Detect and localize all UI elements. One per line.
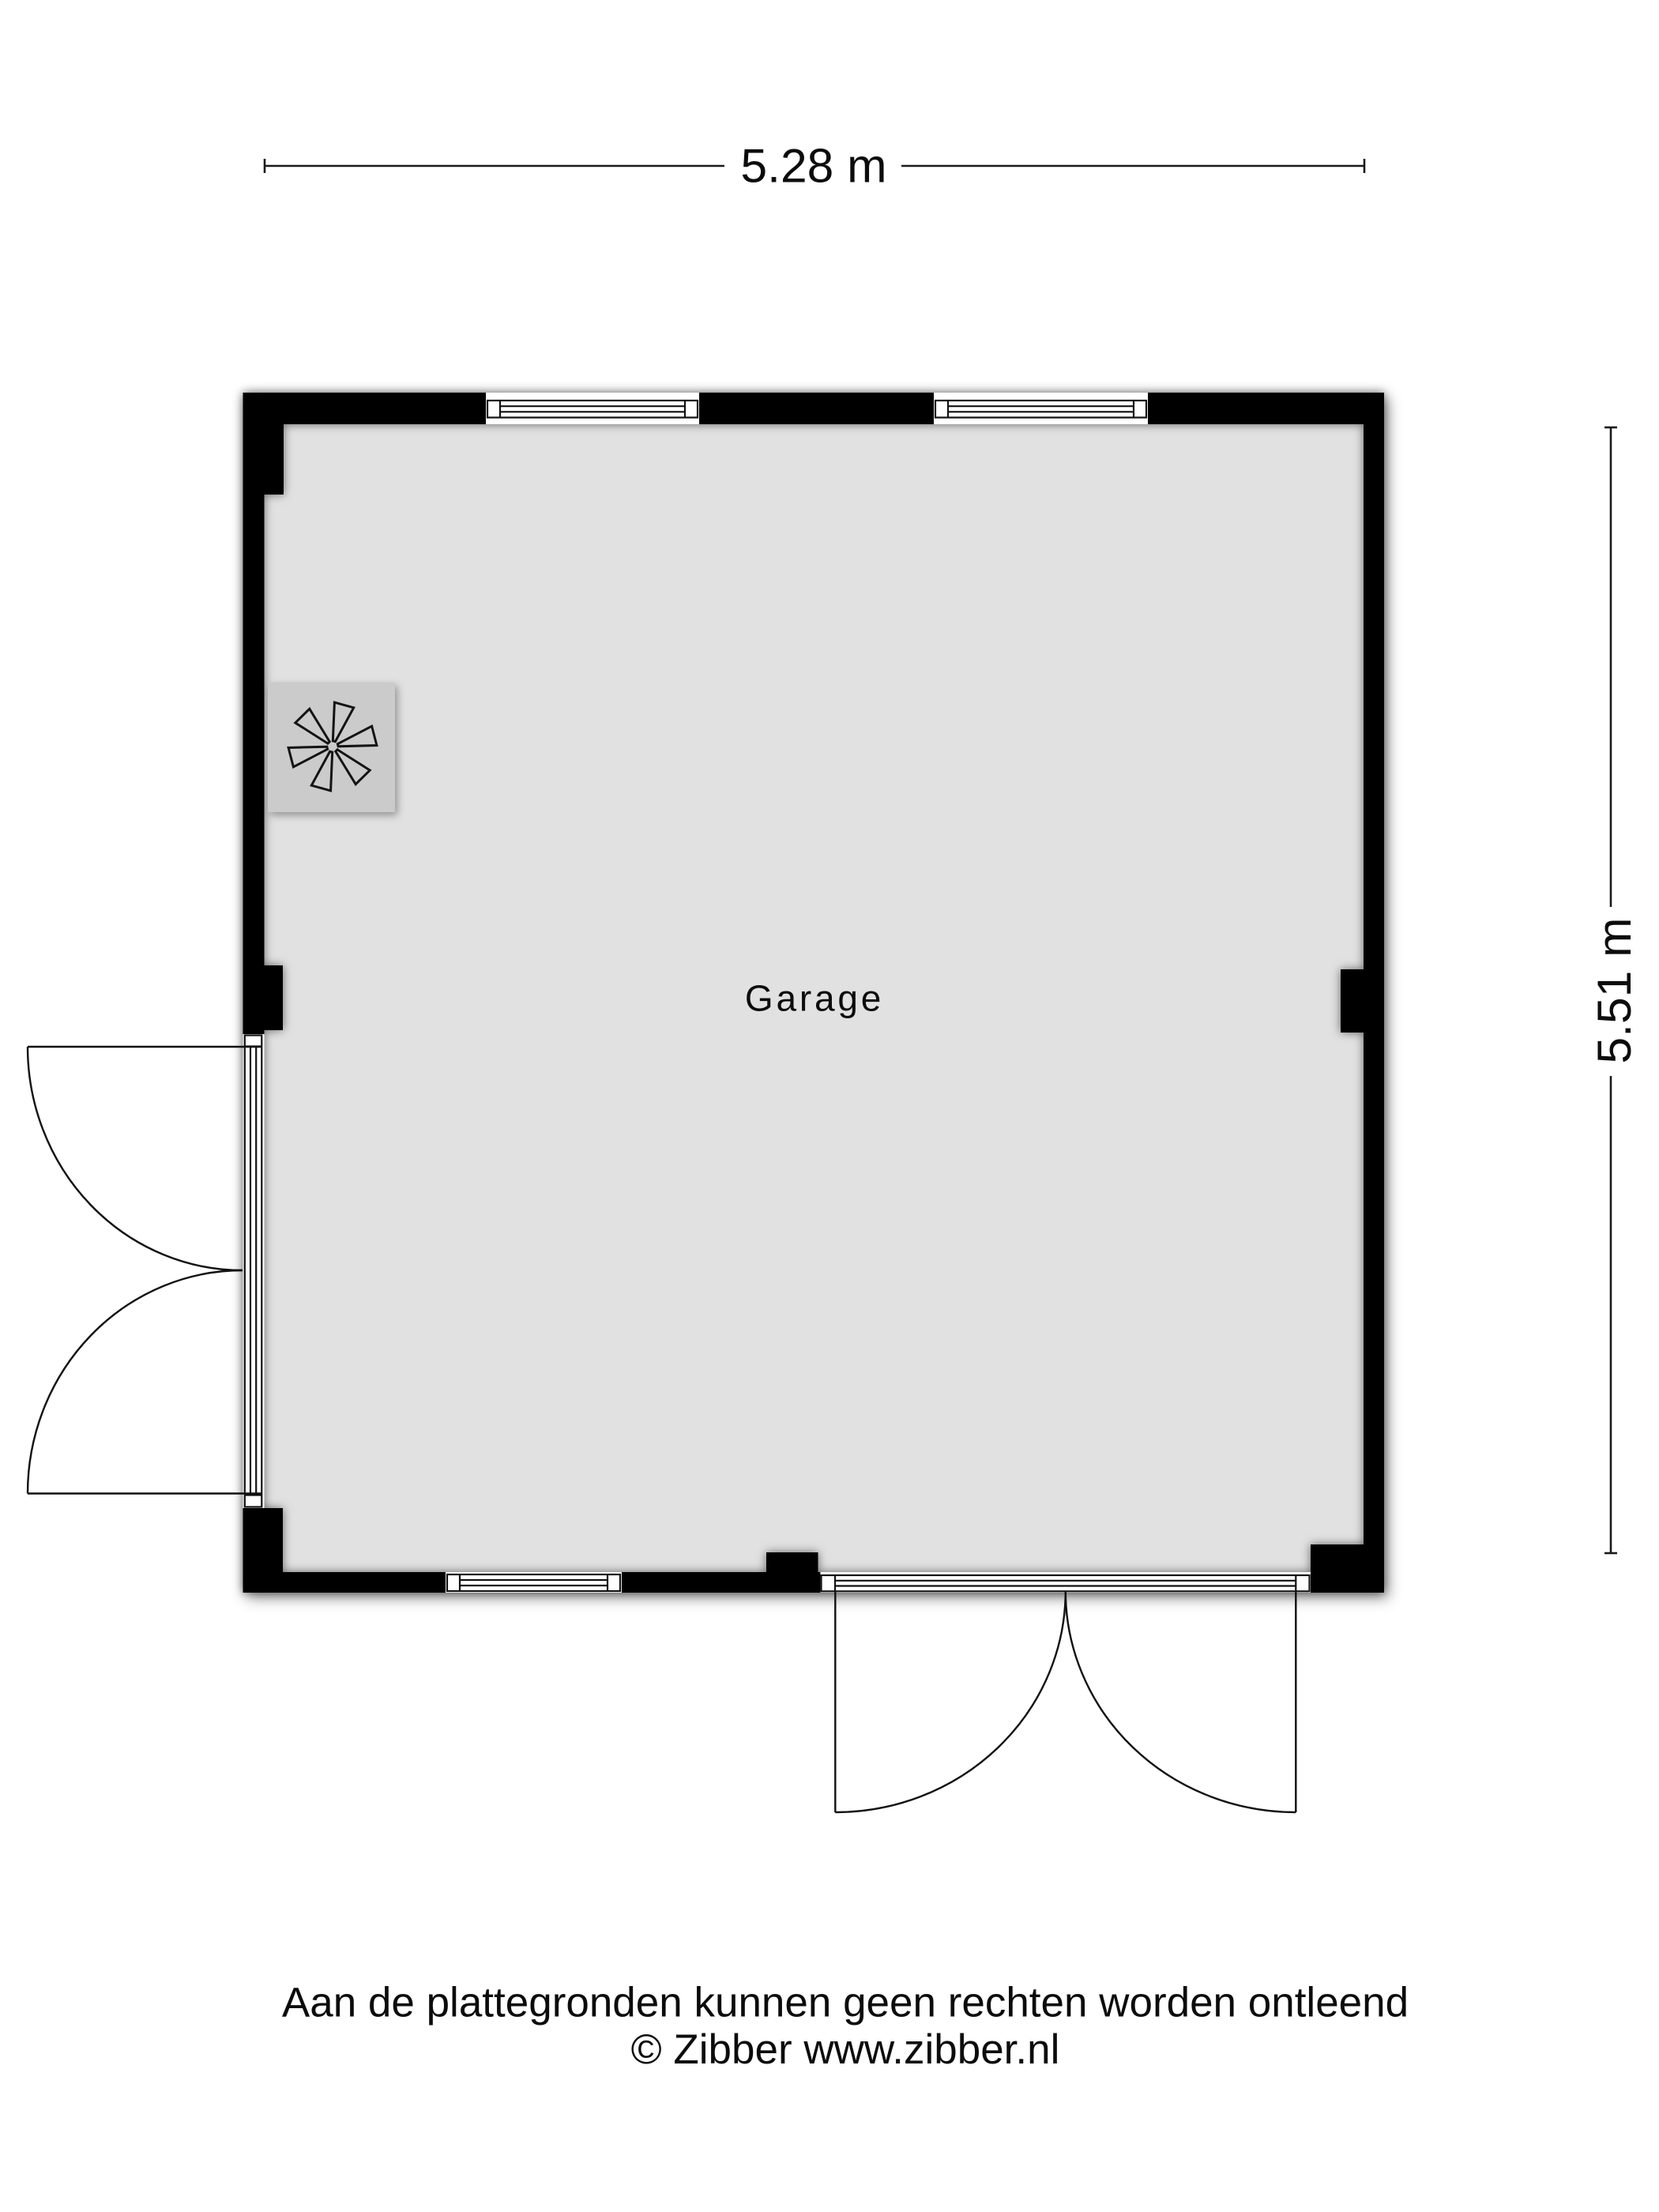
svg-text:5.28 m: 5.28 m bbox=[741, 139, 887, 193]
svg-text:© Zibber www.zibber.nl: © Zibber www.zibber.nl bbox=[631, 2026, 1060, 2073]
svg-text:Garage: Garage bbox=[745, 977, 884, 1018]
svg-text:Aan de plattegronden kunnen ge: Aan de plattegronden kunnen geen rechten… bbox=[282, 1980, 1409, 2026]
svg-text:5.51 m: 5.51 m bbox=[1587, 918, 1641, 1064]
